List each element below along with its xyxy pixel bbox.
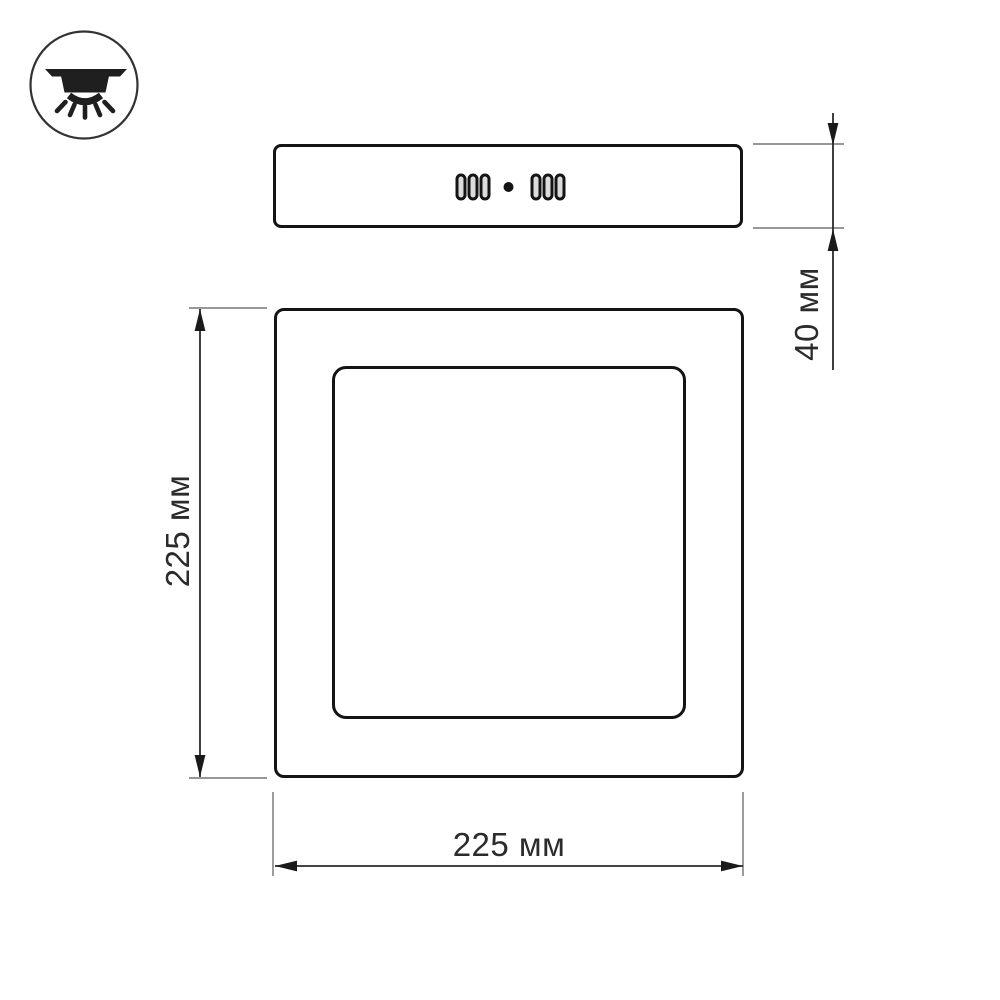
front-view-inner-outline xyxy=(332,366,686,719)
dimension-width-label: 225 мм xyxy=(453,826,566,864)
side-view-outline xyxy=(273,144,743,228)
icon-lamp-body xyxy=(61,76,109,93)
icon-ceiling-plate xyxy=(45,69,127,77)
dimension-depth xyxy=(828,113,839,370)
ceiling-light-icon xyxy=(31,32,138,139)
technical-drawing-canvas: 225 мм 225 мм 40 мм xyxy=(0,0,1000,1000)
dimension-height-label: 225 мм xyxy=(159,475,197,588)
dimension-depth-label: 40 мм xyxy=(788,267,826,361)
